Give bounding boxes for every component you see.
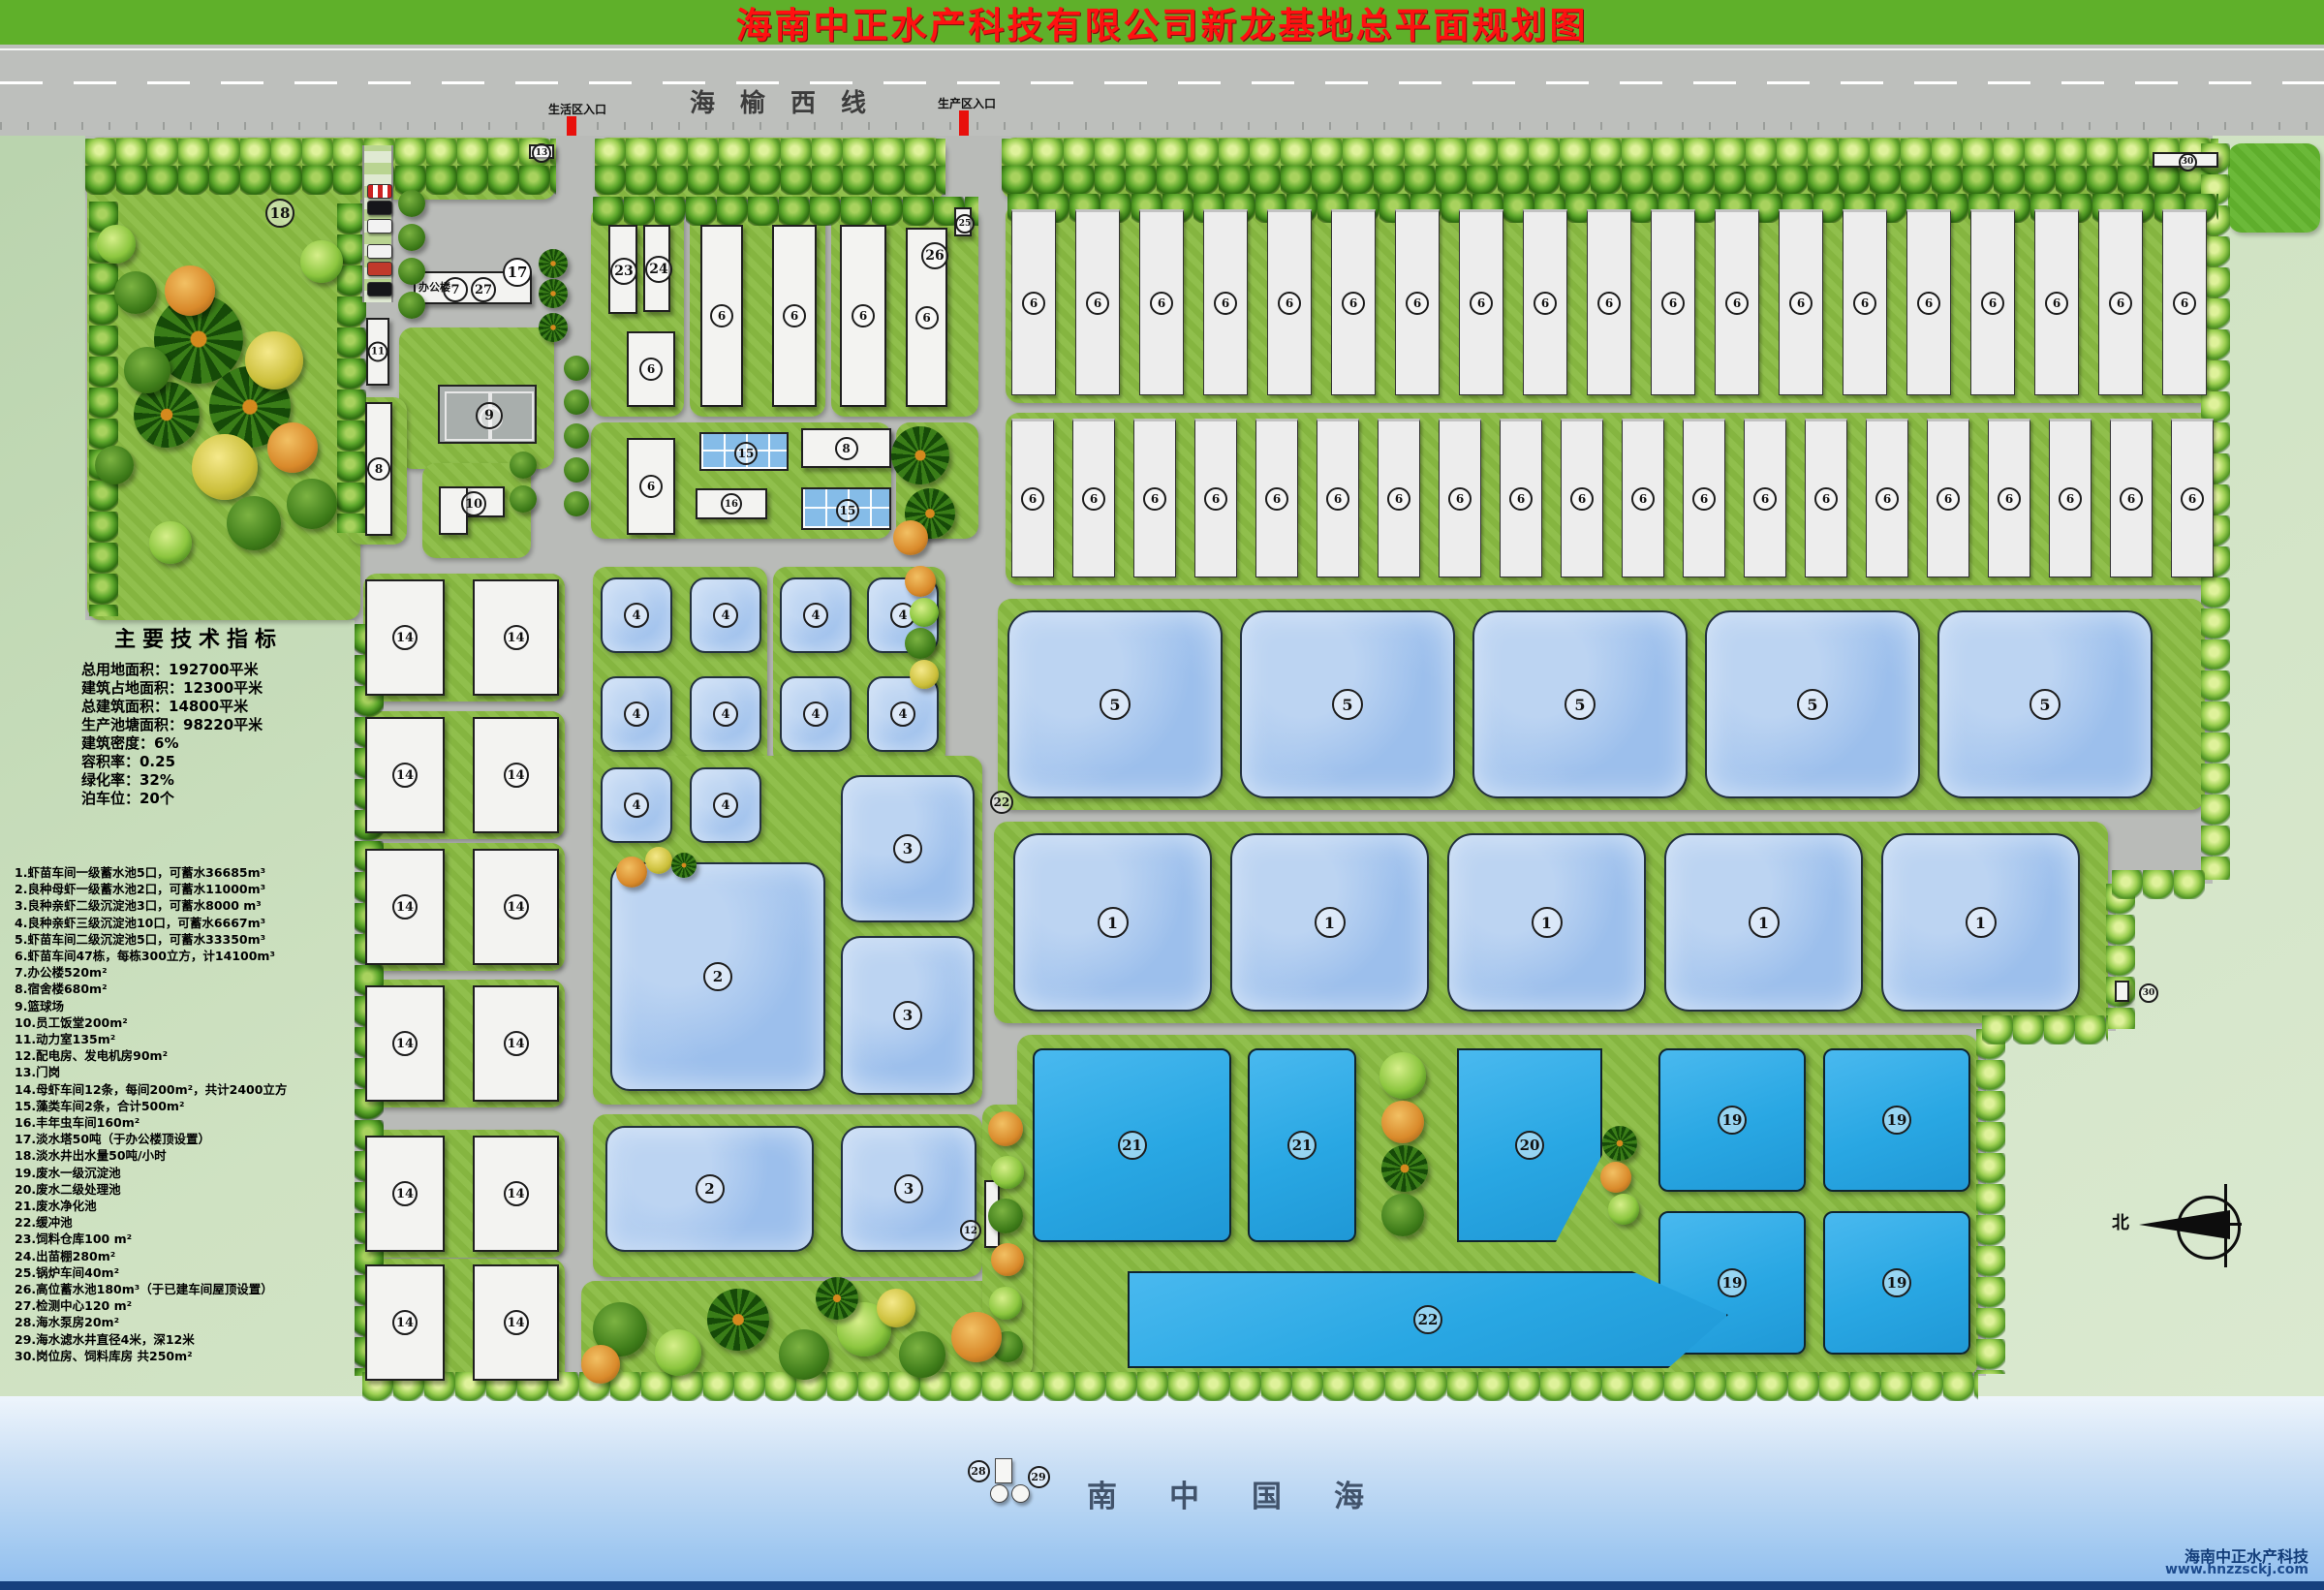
- palm-tree-icon: [1602, 1126, 1637, 1161]
- dark-bush-icon: [564, 356, 589, 381]
- marker-19: 19: [1882, 1268, 1911, 1297]
- marker-14: 14: [504, 625, 529, 650]
- marker-14: 14: [504, 1310, 529, 1335]
- building-6: 6: [1715, 209, 1759, 395]
- marker-6: 6: [710, 304, 733, 327]
- marker-4: 4: [624, 701, 649, 727]
- building-14: 14: [473, 717, 559, 833]
- pond-5: 5: [1705, 610, 1920, 798]
- marker-27: 27: [471, 277, 496, 302]
- marker-14: 14: [392, 763, 418, 788]
- building-14: 14: [473, 985, 559, 1102]
- pond-1: 1: [1881, 833, 2080, 1012]
- legend-item: 26.高位蓄水池180m³（于已建车间屋顶设置）: [15, 1281, 287, 1297]
- dark-bush-icon: [899, 1331, 945, 1378]
- palm-tree-icon: [539, 313, 568, 342]
- pond-4: 4: [690, 676, 761, 752]
- indicator-line: 总用地面积：192700平米: [81, 661, 263, 679]
- marker-4: 4: [803, 701, 828, 727]
- pond-3: 3: [841, 936, 975, 1095]
- marker-6: 6: [1789, 292, 1813, 315]
- marker-6: 6: [1278, 292, 1301, 315]
- building-6: 6: [1622, 419, 1664, 577]
- building-6: 6: [1587, 209, 1631, 395]
- dark-bush-icon: [287, 479, 337, 529]
- legend-item: 9.篮球场: [15, 998, 287, 1014]
- bush-icon: [1379, 1052, 1426, 1099]
- building-6: 6: [1683, 419, 1725, 577]
- parked-car-icon: [367, 282, 392, 296]
- marker-13: 13: [532, 143, 551, 163]
- building-6: 6: [1072, 419, 1115, 577]
- building-11: 11: [366, 318, 389, 386]
- marker-5: 5: [1565, 689, 1596, 720]
- legend-item: 7.办公楼520m²: [15, 964, 287, 981]
- pond-19: 19: [1823, 1048, 1970, 1192]
- legend-item: 4.良种亲虾三级沉淀池10口，可蓄水6667m³: [15, 915, 287, 931]
- legend-item: 17.淡水塔50吨（于办公楼顶设置）: [15, 1131, 287, 1147]
- building-6: 6: [1561, 419, 1603, 577]
- building-6: 6: [772, 225, 817, 407]
- marker-3: 3: [894, 1174, 923, 1203]
- marker-6: 6: [1597, 292, 1621, 315]
- marker-6: 6: [915, 306, 939, 329]
- marker-22: 22: [1413, 1305, 1442, 1334]
- legend-item: 1.虾苗车间一级蓄水池5口，可蓄水36685m³: [15, 864, 287, 881]
- marker-8: 8: [835, 437, 858, 460]
- marker-6: 6: [1981, 292, 2004, 315]
- pond-5: 5: [1472, 610, 1688, 798]
- marker-30: 30: [2179, 153, 2197, 171]
- palm-tree-icon: [707, 1289, 769, 1351]
- building-6: 6: [2098, 209, 2143, 395]
- building-14: 14: [365, 717, 445, 833]
- pond-19: 19: [1823, 1211, 1970, 1355]
- marker-10: 10: [461, 491, 486, 516]
- pond-5: 5: [1240, 610, 1455, 798]
- building-6: 6: [1866, 419, 1908, 577]
- dark-bush-icon: [905, 628, 936, 659]
- flower-bush-icon: [192, 434, 258, 500]
- building-6: 6: [1523, 209, 1567, 395]
- marker-6: 6: [2181, 487, 2204, 511]
- marker-19: 19: [1882, 1106, 1911, 1135]
- marker-17: 17: [503, 258, 532, 287]
- dark-bush-icon: [988, 1199, 1023, 1233]
- marker-6: 6: [1021, 487, 1044, 511]
- building-6: 6: [1139, 209, 1184, 395]
- parked-car-icon: [367, 201, 392, 215]
- marker-6: 6: [1406, 292, 1429, 315]
- sea: 南中国海 海南中正水产科技 www.hnzzsckj.com: [0, 1396, 2324, 1590]
- seawater-filter-well: [990, 1484, 1008, 1503]
- legend-item: 15.藻类车间2条，合计500m²: [15, 1098, 287, 1114]
- gate-barrier-icon: [367, 184, 392, 199]
- dark-bush-icon: [1381, 1194, 1424, 1236]
- marker-5: 5: [1797, 689, 1828, 720]
- legend-item: 29.海水滤水井直径4米，深12米: [15, 1331, 287, 1348]
- pond-4: 4: [601, 676, 672, 752]
- flower-bush-icon: [877, 1289, 915, 1327]
- building-6: 6: [1906, 209, 1951, 395]
- parking-strip: [362, 145, 393, 302]
- building-6: 6: [1133, 419, 1176, 577]
- marker-5: 5: [1332, 689, 1363, 720]
- building-6: 6: [1927, 419, 1969, 577]
- pond-4: 4: [780, 676, 852, 752]
- marker-3: 3: [893, 1001, 922, 1030]
- legend-item: 21.废水净化池: [15, 1198, 287, 1214]
- building-14: 14: [365, 985, 445, 1102]
- marker-22: 22: [990, 791, 1013, 814]
- marker-6: 6: [1387, 487, 1410, 511]
- autumn-tree-icon: [905, 566, 936, 597]
- building-6: 6: [2162, 209, 2207, 395]
- building-6: 6: [1779, 209, 1823, 395]
- building-8: 8: [801, 428, 891, 468]
- marker-14: 14: [504, 1181, 529, 1206]
- legend-item: 8.宿舍楼680m²: [15, 981, 287, 997]
- building-16: 16: [696, 488, 767, 519]
- indicator-line: 建筑密度：6%: [81, 734, 263, 753]
- palm-tree-icon: [539, 279, 568, 308]
- autumn-tree-icon: [893, 520, 928, 555]
- marker-14: 14: [392, 625, 418, 650]
- dark-bush-icon: [398, 292, 425, 319]
- marker-6: 6: [1326, 487, 1349, 511]
- marker-2: 2: [703, 962, 732, 991]
- parked-car-icon: [367, 262, 392, 276]
- dark-bush-icon: [564, 390, 589, 415]
- legend-item: 3.良种亲虾二级沉淀池3口，可蓄水8000 m³: [15, 897, 287, 914]
- marker-6: 6: [783, 304, 806, 327]
- building-14: 14: [365, 849, 445, 965]
- marker-4: 4: [713, 793, 738, 818]
- marker-21: 21: [1287, 1131, 1317, 1160]
- building-6: 6: [840, 225, 886, 407]
- marker-6: 6: [2045, 292, 2068, 315]
- autumn-tree-icon: [267, 422, 318, 473]
- marker-25: 25: [955, 214, 975, 234]
- bush-icon: [989, 1287, 1022, 1320]
- autumn-tree-icon: [1600, 1162, 1631, 1193]
- dark-bush-icon: [564, 491, 589, 516]
- marker-6: 6: [1150, 292, 1173, 315]
- marker-6: 6: [1534, 292, 1557, 315]
- marker-4: 4: [713, 603, 738, 628]
- dark-bush-icon: [95, 446, 134, 484]
- autumn-tree-icon: [951, 1312, 1002, 1362]
- legend-item: 27.检测中心120 m²: [15, 1297, 287, 1314]
- indicator-line: 生产池塘面积：98220平米: [81, 716, 263, 734]
- marker-4: 4: [803, 603, 828, 628]
- building-6: 6: [1255, 419, 1298, 577]
- building-6: 6: [1500, 419, 1542, 577]
- marker-6: 6: [2173, 292, 2196, 315]
- marker-19: 19: [1718, 1268, 1747, 1297]
- building-6: 6: [1744, 419, 1786, 577]
- bush-icon: [1608, 1194, 1639, 1225]
- building-6: 6: [1988, 419, 2030, 577]
- legend-item: 5.虾苗车间二级沉淀池5口，可蓄水33350m³: [15, 931, 287, 948]
- marker-6: 6: [1692, 487, 1716, 511]
- green-block: [1006, 413, 2218, 585]
- building-6: 6: [1439, 419, 1481, 577]
- green-block: [2228, 143, 2320, 233]
- pond-4: 4: [601, 577, 672, 653]
- marker-6: 6: [1204, 487, 1227, 511]
- marker-6: 6: [852, 304, 875, 327]
- building-6: 6: [2034, 209, 2079, 395]
- marker-1: 1: [1749, 907, 1780, 938]
- compass-crosshair-h: [2168, 1223, 2242, 1226]
- site-map: 118666666816办公楼1414141414141414141414146…: [0, 0, 2324, 1590]
- marker-30: 30: [2139, 983, 2158, 1003]
- marker-5: 5: [2030, 689, 2061, 720]
- pond-5: 5: [1007, 610, 1223, 798]
- marker-6: 6: [1937, 487, 1960, 511]
- office-label: 办公楼: [418, 279, 450, 295]
- marker-6: 6: [2109, 292, 2132, 315]
- marker-6: 6: [1853, 292, 1876, 315]
- marker-6: 6: [1342, 292, 1365, 315]
- marker-14: 14: [504, 894, 529, 920]
- marker-6: 6: [1448, 487, 1472, 511]
- marker-5: 5: [1100, 689, 1131, 720]
- marker-2: 2: [696, 1174, 725, 1203]
- seawater-filter-well: [1011, 1484, 1030, 1503]
- pond-4: 4: [780, 577, 852, 653]
- marker-15: 15: [836, 499, 859, 522]
- building-6: 6: [1378, 419, 1420, 577]
- marker-6: 6: [1570, 487, 1594, 511]
- legend-item: 11.动力室135m²: [15, 1031, 287, 1047]
- pond-1: 1: [1230, 833, 1429, 1012]
- bush-icon: [149, 521, 192, 564]
- pond-2: 2: [605, 1126, 814, 1252]
- pond-21: 21: [1033, 1048, 1231, 1242]
- autumn-tree-icon: [165, 265, 215, 316]
- autumn-tree-icon: [988, 1111, 1023, 1146]
- building-6: 6: [1805, 419, 1847, 577]
- legend-item: 18.淡水井出水量50吨/小时: [15, 1147, 287, 1164]
- building-14: 14: [473, 1264, 559, 1381]
- marker-4: 4: [890, 701, 915, 727]
- building-6: 6: [1011, 209, 1056, 395]
- marker-6: 6: [1509, 487, 1533, 511]
- bush-icon: [97, 225, 136, 264]
- building-6: 6: [1459, 209, 1503, 395]
- palm-tree-icon: [891, 426, 949, 484]
- indicator-line: 容积率：0.25: [81, 753, 263, 771]
- flower-bush-icon: [910, 660, 939, 689]
- marker-20: 20: [1515, 1131, 1544, 1160]
- indicator-line: 绿化率：32%: [81, 771, 263, 790]
- indicators-list: 总用地面积：192700平米建筑占地面积：12300平米总建筑面积：14800平…: [81, 661, 263, 808]
- pond-3: 3: [841, 1126, 976, 1252]
- marker-6: 6: [1725, 292, 1749, 315]
- marker-6: 6: [1086, 292, 1109, 315]
- marker-16: 16: [721, 493, 742, 514]
- marker-9: 9: [476, 402, 503, 429]
- parked-car-icon: [367, 219, 392, 234]
- pond-1: 1: [1447, 833, 1646, 1012]
- building-6: 6: [2049, 419, 2092, 577]
- bottom-strip: [0, 1581, 2324, 1590]
- dark-bush-icon: [227, 496, 281, 550]
- marker-6: 6: [2120, 487, 2143, 511]
- palm-tree-icon: [1381, 1145, 1428, 1192]
- autumn-tree-icon: [1381, 1101, 1424, 1143]
- marker-14: 14: [392, 894, 418, 920]
- legend-item: 30.岗位房、饲料库房 共250m²: [15, 1348, 287, 1364]
- building-14: 14: [473, 1136, 559, 1252]
- building-14: 14: [473, 579, 559, 696]
- dark-bush-icon: [564, 457, 589, 483]
- legend-item: 12.配电房、发电机房90m²: [15, 1047, 287, 1064]
- building-6: 6: [1194, 419, 1237, 577]
- building-14: 14: [365, 1136, 445, 1252]
- marker-12: 12: [960, 1220, 981, 1241]
- building: [2115, 981, 2129, 1002]
- marker-24: 24: [645, 256, 672, 283]
- marker-6: 6: [639, 475, 663, 498]
- building-6: 6: [1317, 419, 1359, 577]
- legend-item: 22.缓冲池: [15, 1214, 287, 1231]
- marker-6: 6: [1998, 487, 2021, 511]
- marker-11: 11: [368, 342, 388, 362]
- dark-bush-icon: [398, 224, 425, 251]
- dark-bush-icon: [510, 485, 537, 513]
- marker-14: 14: [392, 1031, 418, 1056]
- marker-26: 26: [921, 242, 948, 269]
- dark-bush-icon: [779, 1329, 829, 1380]
- legend-item: 20.废水二级处理池: [15, 1181, 287, 1198]
- bush-icon: [300, 240, 343, 283]
- pond-2: 2: [610, 862, 825, 1091]
- building-6: 6: [627, 438, 675, 535]
- marker-14: 14: [392, 1310, 418, 1335]
- building-6: 6: [1203, 209, 1248, 395]
- building-6: 6: [1843, 209, 1887, 395]
- autumn-tree-icon: [616, 857, 647, 888]
- indicator-line: 泊车位：20个: [81, 790, 263, 808]
- legend-item: 24.出苗棚280m²: [15, 1248, 287, 1264]
- marker-6: 6: [1265, 487, 1288, 511]
- marker-6: 6: [2059, 487, 2082, 511]
- green-block: [1002, 138, 2218, 200]
- marker-14: 14: [504, 763, 529, 788]
- marker-4: 4: [624, 793, 649, 818]
- building-6: 6: [1970, 209, 2015, 395]
- marker-6: 6: [639, 358, 663, 381]
- legend-item: 23.饲料仓库100 m²: [15, 1231, 287, 1247]
- marker-6: 6: [1022, 292, 1045, 315]
- dark-bush-icon: [124, 347, 170, 393]
- legend-item: 14.母虾车间12条，每间200m²，共计2400立方: [15, 1081, 287, 1098]
- marker-8: 8: [367, 457, 390, 481]
- compass-north-label: 北: [2112, 1209, 2129, 1234]
- marker-19: 19: [1718, 1106, 1747, 1135]
- marker-6: 6: [1814, 487, 1838, 511]
- marker-4: 4: [624, 603, 649, 628]
- building-6: 6: [2171, 419, 2214, 577]
- pond-4: 4: [690, 577, 761, 653]
- building-6: 6: [2110, 419, 2153, 577]
- pond-1: 1: [1664, 833, 1863, 1012]
- marker-15: 15: [734, 442, 758, 465]
- site-plan-canvas: 海南中正水产科技有限公司新龙基地总平面规划图 海榆西线 生活区入口 生产区入口 …: [0, 0, 2324, 1590]
- dark-bush-icon: [510, 452, 537, 479]
- dark-bush-icon: [398, 190, 425, 217]
- bush-icon: [991, 1156, 1024, 1189]
- palm-tree-icon: [539, 249, 568, 278]
- parked-car-icon: [367, 244, 392, 259]
- marker-14: 14: [392, 1181, 418, 1206]
- indicator-line: 建筑占地面积：12300平米: [81, 679, 263, 698]
- marker-4: 4: [713, 701, 738, 727]
- building-14: 14: [473, 849, 559, 965]
- palm-tree-icon: [816, 1277, 858, 1320]
- legend-item: 10.员工饭堂200m²: [15, 1014, 287, 1031]
- legend-item: 28.海水泵房20m²: [15, 1314, 287, 1330]
- compass-crosshair-v: [2224, 1184, 2227, 1267]
- dark-bush-icon: [114, 271, 157, 314]
- autumn-tree-icon: [581, 1345, 620, 1384]
- bush-icon: [655, 1329, 701, 1376]
- marker-18: 18: [265, 199, 294, 228]
- building-6: 6: [1267, 209, 1312, 395]
- marker-6: 6: [1875, 487, 1899, 511]
- building-6: 6: [1331, 209, 1376, 395]
- building-6: 6: [627, 331, 675, 407]
- legend-item: 25.锅炉车间40m²: [15, 1264, 287, 1281]
- indicators-title: 主要技术指标: [114, 622, 283, 653]
- building-8: 8: [365, 402, 392, 536]
- building-6: 6: [1075, 209, 1120, 395]
- building-14: 14: [365, 1264, 445, 1381]
- legend-list: 1.虾苗车间一级蓄水池5口，可蓄水36685m³2.良种母虾一级蓄水池2口，可蓄…: [15, 864, 287, 1364]
- marker-6: 6: [1143, 487, 1166, 511]
- building-6: 6: [700, 225, 743, 407]
- marker-1: 1: [1098, 907, 1129, 938]
- legend-item: 13.门岗: [15, 1064, 287, 1080]
- pond-3: 3: [841, 775, 975, 922]
- sea-name: 南中国海: [1087, 1472, 1416, 1515]
- bush-icon: [910, 598, 939, 627]
- building-6: 6: [1395, 209, 1440, 395]
- building-6: 6: [1011, 419, 1054, 577]
- marker-14: 14: [504, 1031, 529, 1056]
- dark-bush-icon: [564, 423, 589, 449]
- indicator-line: 总建筑面积：14800平米: [81, 698, 263, 716]
- marker-3: 3: [893, 834, 922, 863]
- marker-28: 28: [968, 1460, 990, 1482]
- legend-item: 2.良种母虾一级蓄水池2口，可蓄水11000m³: [15, 881, 287, 897]
- marker-6: 6: [1631, 487, 1655, 511]
- marker-23: 23: [610, 258, 637, 285]
- pond-21: 21: [1248, 1048, 1356, 1242]
- marker-21: 21: [1118, 1131, 1147, 1160]
- marker-6: 6: [1214, 292, 1237, 315]
- marker-6: 6: [1082, 487, 1105, 511]
- pond-5: 5: [1937, 610, 2153, 798]
- pond-4: 4: [601, 767, 672, 843]
- building-14: 14: [365, 579, 445, 696]
- marker-6: 6: [1917, 292, 1940, 315]
- pond-4: 4: [690, 767, 761, 843]
- marker-6: 6: [1470, 292, 1493, 315]
